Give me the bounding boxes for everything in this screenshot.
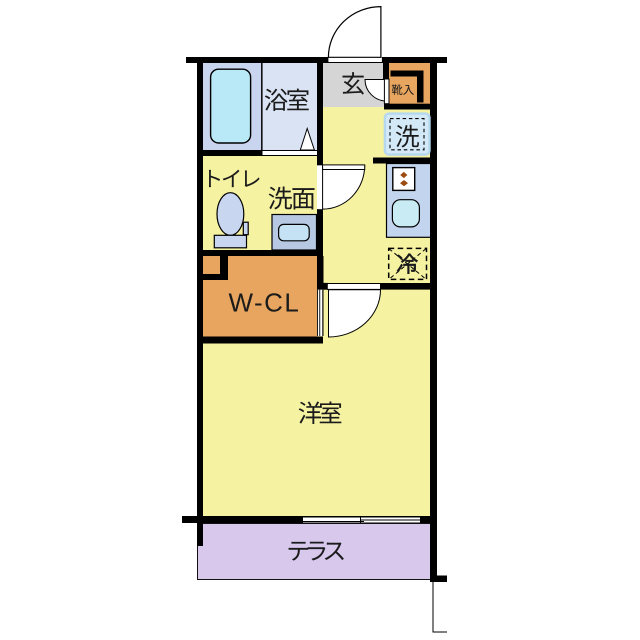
svg-text:W-CL: W-CL	[229, 288, 301, 318]
